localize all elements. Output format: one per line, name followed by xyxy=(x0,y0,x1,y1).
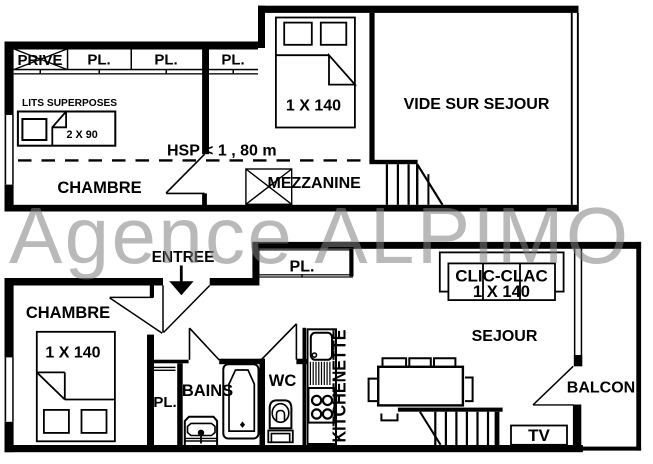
svg-text:SEJOUR: SEJOUR xyxy=(472,328,538,345)
svg-text:CHAMBRE: CHAMBRE xyxy=(26,304,110,322)
svg-text:PL.: PL. xyxy=(221,52,244,69)
svg-text:LITS SUPERPOSES: LITS SUPERPOSES xyxy=(22,98,117,109)
svg-text:PL.: PL. xyxy=(154,52,177,69)
svg-text:1 X 140: 1 X 140 xyxy=(45,345,100,362)
svg-text:HSP < 1 , 80 m: HSP < 1 , 80 m xyxy=(167,143,277,160)
svg-text:BALCON: BALCON xyxy=(567,380,635,397)
svg-text:1 X 140: 1 X 140 xyxy=(286,98,341,115)
svg-text:PL.: PL. xyxy=(87,52,110,69)
svg-text:1 X 140: 1 X 140 xyxy=(473,283,530,301)
svg-text:2 X 90: 2 X 90 xyxy=(67,129,98,141)
svg-text:WC: WC xyxy=(269,372,297,390)
svg-text:VIDE SUR SEJOUR: VIDE SUR SEJOUR xyxy=(404,96,550,113)
svg-text:Agence ALPIMO: Agence ALPIMO xyxy=(9,191,630,280)
svg-text:PRIVE: PRIVE xyxy=(17,52,62,69)
svg-text:TV: TV xyxy=(528,426,550,445)
svg-text:BAINS: BAINS xyxy=(182,382,233,400)
svg-text:PL.: PL. xyxy=(153,394,176,411)
svg-text:MEZZANINE: MEZZANINE xyxy=(268,175,362,192)
svg-text:KITCHENETTE: KITCHENETTE xyxy=(330,330,350,443)
